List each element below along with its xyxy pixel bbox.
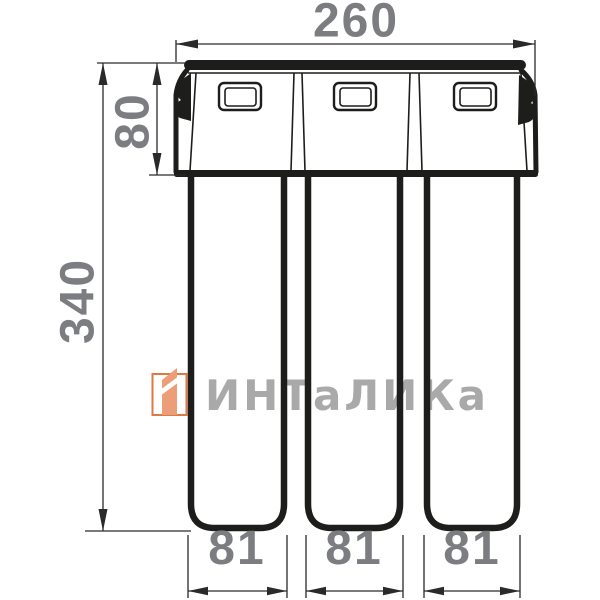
head-divider-line — [407, 73, 410, 171]
head-latch-window-1 — [219, 83, 261, 110]
filter-cartridge-3 — [427, 176, 517, 528]
intalika-logo-icon — [153, 368, 187, 415]
dimension-cartridge-width-2: 81 — [306, 522, 403, 598]
arrowhead-up — [99, 63, 108, 85]
filter-dimensional-drawing: ИНТаЛИКа — [0, 0, 600, 600]
arrowhead-right — [267, 587, 287, 595]
head-divider-line — [291, 73, 294, 171]
dim-cartridge-width-label-2: 81 — [325, 522, 382, 575]
filter-head-body — [174, 70, 538, 177]
dim-head-height-label: 80 — [106, 92, 159, 149]
dimension-overall-width: 260 — [176, 0, 535, 96]
arrowhead-right — [513, 40, 535, 49]
watermark: ИНТаЛИКа — [153, 368, 490, 420]
arrowhead-left — [176, 40, 198, 49]
arrowhead-down — [153, 153, 162, 175]
dimension-cartridge-width-3: 81 — [424, 522, 520, 598]
arrowhead-left — [188, 587, 208, 595]
arrowhead-right — [383, 587, 403, 595]
arrowhead-down — [99, 509, 108, 531]
dim-cartridge-width-label-1: 81 — [208, 522, 265, 575]
arrowhead-left — [424, 587, 444, 595]
dim-cartridge-width-label-3: 81 — [443, 522, 500, 575]
dim-overall-height-label: 340 — [51, 258, 104, 344]
arrowhead-right — [500, 587, 520, 595]
arrowhead-left — [306, 587, 326, 595]
head-bottom-bar — [174, 170, 538, 177]
filter-cartridge-1 — [191, 176, 284, 528]
filter-unit — [174, 60, 538, 528]
head-latch-window-3 — [454, 83, 496, 110]
filter-head-top-plate — [184, 60, 526, 70]
head-divider-line — [302, 73, 305, 171]
dimension-cartridge-width-1: 81 — [188, 522, 287, 598]
arrowhead-up — [153, 63, 162, 85]
filter-cartridge-2 — [308, 176, 400, 528]
dim-overall-width-label: 260 — [313, 0, 399, 47]
technical-drawing-canvas: ИНТаЛИКа — [0, 0, 600, 600]
head-latch-window-2 — [334, 83, 376, 110]
watermark-text: ИНТаЛИКа — [205, 371, 489, 420]
head-divider-line — [419, 73, 422, 171]
